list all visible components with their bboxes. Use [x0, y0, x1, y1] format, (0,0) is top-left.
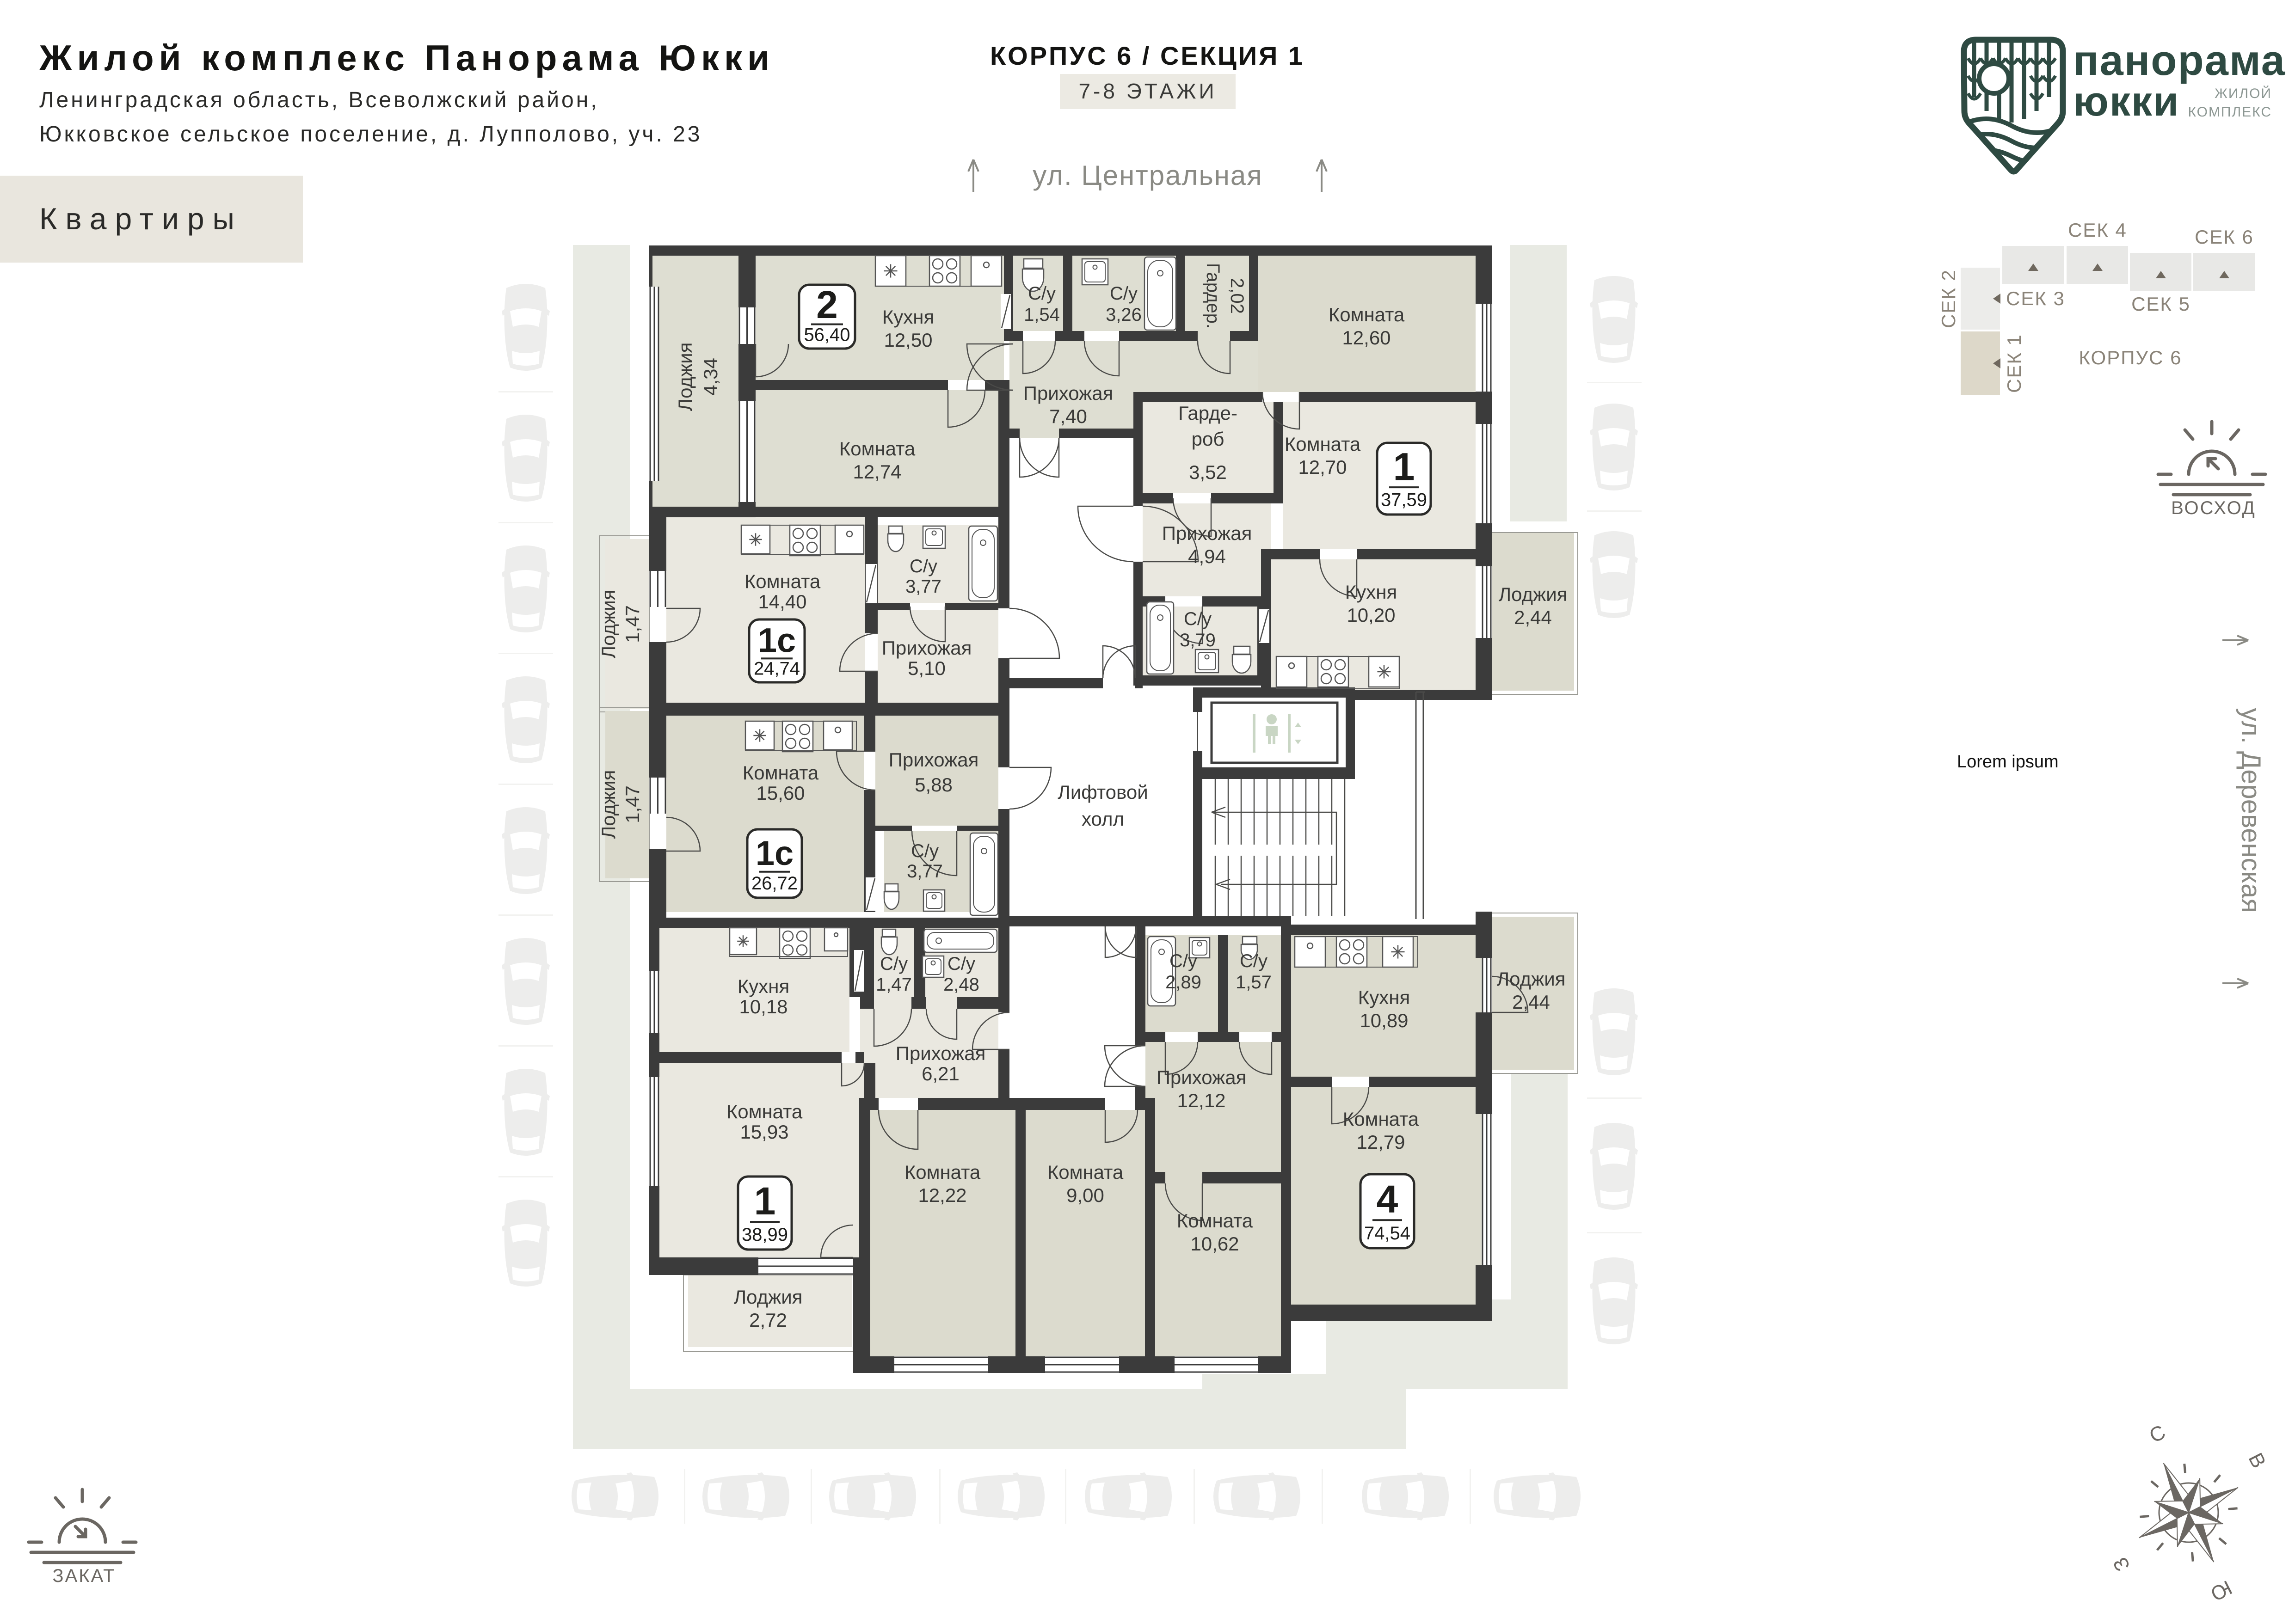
svg-text:12,12: 12,12	[1177, 1090, 1225, 1111]
svg-text:2,89: 2,89	[1165, 972, 1201, 993]
svg-text:3,79: 3,79	[1180, 630, 1216, 650]
svg-text:С/у: С/у	[1184, 609, 1212, 629]
svg-text:Лоджия: Лоджия	[1499, 583, 1568, 605]
svg-text:1,54: 1,54	[1024, 305, 1060, 325]
svg-text:Лоджия: Лоджия	[597, 770, 619, 839]
svg-text:5,88: 5,88	[915, 774, 953, 796]
svg-text:Комната: Комната	[743, 762, 819, 784]
svg-text:38,99: 38,99	[742, 1225, 788, 1245]
svg-text:12,70: 12,70	[1298, 456, 1347, 478]
svg-text:15,93: 15,93	[740, 1121, 788, 1143]
svg-text:6,21: 6,21	[922, 1063, 960, 1085]
svg-text:Лоджия: Лоджия	[734, 1286, 803, 1308]
svg-text:12,60: 12,60	[1342, 327, 1391, 349]
svg-text:Квартиры: Квартиры	[39, 202, 243, 236]
svg-text:1: 1	[754, 1179, 776, 1223]
svg-text:ул. Центральная: ул. Центральная	[1033, 160, 1262, 191]
svg-text:2,44: 2,44	[1514, 607, 1552, 628]
svg-text:Гардер.: Гардер.	[1203, 263, 1223, 329]
svg-text:Комната: Комната	[744, 570, 821, 592]
svg-text:Комната: Комната	[1343, 1108, 1419, 1130]
svg-text:1: 1	[1393, 445, 1415, 489]
svg-text:Прихожая: Прихожая	[1157, 1066, 1247, 1088]
svg-text:74,54: 74,54	[1364, 1223, 1410, 1244]
svg-text:Прихожая: Прихожая	[1162, 522, 1252, 544]
svg-text:12,74: 12,74	[853, 461, 901, 483]
svg-text:7,40: 7,40	[1049, 405, 1087, 427]
svg-text:4,94: 4,94	[1188, 545, 1226, 567]
svg-text:26,72: 26,72	[751, 873, 798, 894]
svg-text:юкки: юкки	[2073, 79, 2179, 125]
svg-text:Комната: Комната	[1177, 1210, 1253, 1232]
svg-text:1,47: 1,47	[621, 785, 643, 823]
svg-text:Комната: Комната	[839, 438, 916, 460]
svg-text:С/у: С/у	[1240, 951, 1267, 971]
svg-text:2: 2	[816, 283, 838, 326]
svg-text:3,26: 3,26	[1106, 305, 1142, 325]
svg-text:Прихожая: Прихожая	[896, 1042, 986, 1064]
svg-text:С/у: С/у	[880, 954, 908, 974]
svg-text:СЕК 1: СЕК 1	[2003, 334, 2025, 393]
svg-text:15,60: 15,60	[756, 782, 805, 804]
svg-text:1,57: 1,57	[1236, 972, 1272, 993]
svg-text:СЕК 6: СЕК 6	[2195, 226, 2254, 248]
svg-text:ЖИЛОЙ: ЖИЛОЙ	[2215, 86, 2272, 101]
svg-text:ВОСХОД: ВОСХОД	[2171, 498, 2256, 518]
svg-text:12,50: 12,50	[884, 329, 932, 351]
svg-text:КОРПУС 6: КОРПУС 6	[2079, 347, 2182, 368]
svg-text:1,47: 1,47	[876, 974, 912, 995]
svg-text:Прихожая: Прихожая	[889, 749, 979, 771]
svg-text:СЕК 4: СЕК 4	[2068, 219, 2127, 241]
svg-text:1с: 1с	[758, 621, 796, 660]
svg-text:Комната: Комната	[726, 1101, 803, 1122]
svg-text:Кухня: Кухня	[738, 975, 789, 997]
svg-text:КОМПЛЕКС: КОМПЛЕКС	[2188, 104, 2272, 120]
svg-text:С/у: С/у	[1169, 951, 1197, 971]
svg-text:14,40: 14,40	[758, 591, 806, 613]
svg-text:Комната: Комната	[904, 1161, 981, 1183]
svg-text:3,77: 3,77	[907, 861, 943, 882]
svg-text:12,22: 12,22	[918, 1184, 966, 1206]
svg-text:Гарде-: Гарде-	[1178, 402, 1237, 424]
svg-text:СЕК 3: СЕК 3	[2006, 288, 2065, 309]
svg-text:С/у: С/у	[1028, 283, 1056, 304]
svg-text:3,77: 3,77	[905, 576, 941, 597]
svg-text:5,10: 5,10	[908, 657, 946, 679]
svg-text:37,59: 37,59	[1381, 490, 1427, 510]
svg-text:10,18: 10,18	[739, 996, 788, 1017]
svg-text:Лоджия: Лоджия	[1497, 968, 1566, 990]
svg-text:2,02: 2,02	[1227, 278, 1247, 314]
svg-text:С/у: С/у	[911, 841, 939, 861]
svg-text:1,47: 1,47	[621, 605, 643, 643]
svg-text:панорама: панорама	[2073, 37, 2286, 84]
svg-text:24,74: 24,74	[754, 659, 800, 679]
svg-text:9,00: 9,00	[1066, 1184, 1104, 1206]
svg-text:Прихожая: Прихожая	[882, 637, 972, 659]
svg-text:Жилой комплекс Панорама Юкки: Жилой комплекс Панорама Юкки	[39, 37, 775, 78]
svg-text:Комната: Комната	[1285, 433, 1361, 455]
svg-text:1с: 1с	[756, 834, 794, 872]
svg-text:СЕК 2: СЕК 2	[1938, 269, 1959, 328]
svg-text:С/у: С/у	[948, 954, 975, 974]
svg-text:2,72: 2,72	[749, 1309, 787, 1331]
svg-text:56,40: 56,40	[804, 325, 850, 345]
svg-text:4: 4	[1377, 1177, 1398, 1221]
svg-text:Лифтовой: Лифтовой	[1058, 781, 1148, 803]
svg-text:Кухня: Кухня	[882, 306, 934, 328]
svg-text:2,44: 2,44	[1512, 991, 1550, 1013]
svg-text:Прихожая: Прихожая	[1023, 382, 1114, 404]
svg-text:2,48: 2,48	[943, 974, 979, 995]
svg-text:КОРПУС 6 / СЕКЦИЯ 1: КОРПУС 6 / СЕКЦИЯ 1	[990, 41, 1304, 70]
svg-text:3,52: 3,52	[1189, 461, 1227, 483]
svg-text:роб: роб	[1192, 428, 1224, 450]
svg-text:Кухня: Кухня	[1358, 987, 1410, 1008]
svg-text:Лоджия: Лоджия	[674, 343, 696, 411]
svg-text:ЗАКАТ: ЗАКАТ	[52, 1566, 116, 1586]
svg-text:СЕК 5: СЕК 5	[2131, 293, 2190, 315]
svg-text:Lorem ipsum: Lorem ipsum	[1957, 752, 2059, 772]
svg-text:Юкковское сельское поселение,: Юкковское сельское поселение, д. Лупполо…	[39, 122, 702, 147]
svg-text:4,34: 4,34	[700, 358, 721, 396]
svg-text:10,20: 10,20	[1347, 604, 1395, 626]
svg-text:ул. Деревенская: ул. Деревенская	[2236, 708, 2266, 913]
svg-text:12,79: 12,79	[1356, 1131, 1405, 1153]
svg-text:холл: холл	[1082, 808, 1124, 830]
svg-text:Комната: Комната	[1047, 1161, 1124, 1183]
svg-text:Кухня: Кухня	[1345, 581, 1397, 603]
svg-text:7-8 ЭТАЖИ: 7-8 ЭТАЖИ	[1078, 79, 1217, 103]
svg-text:Ленинградская область, Всеволж: Ленинградская область, Всеволжский район…	[39, 88, 599, 112]
svg-text:Комната: Комната	[1329, 304, 1405, 325]
svg-text:С/у: С/у	[910, 556, 937, 576]
svg-text:10,62: 10,62	[1190, 1233, 1239, 1255]
svg-text:С/у: С/у	[1110, 283, 1138, 304]
svg-text:10,89: 10,89	[1360, 1010, 1408, 1031]
svg-text:Лоджия: Лоджия	[597, 590, 619, 659]
